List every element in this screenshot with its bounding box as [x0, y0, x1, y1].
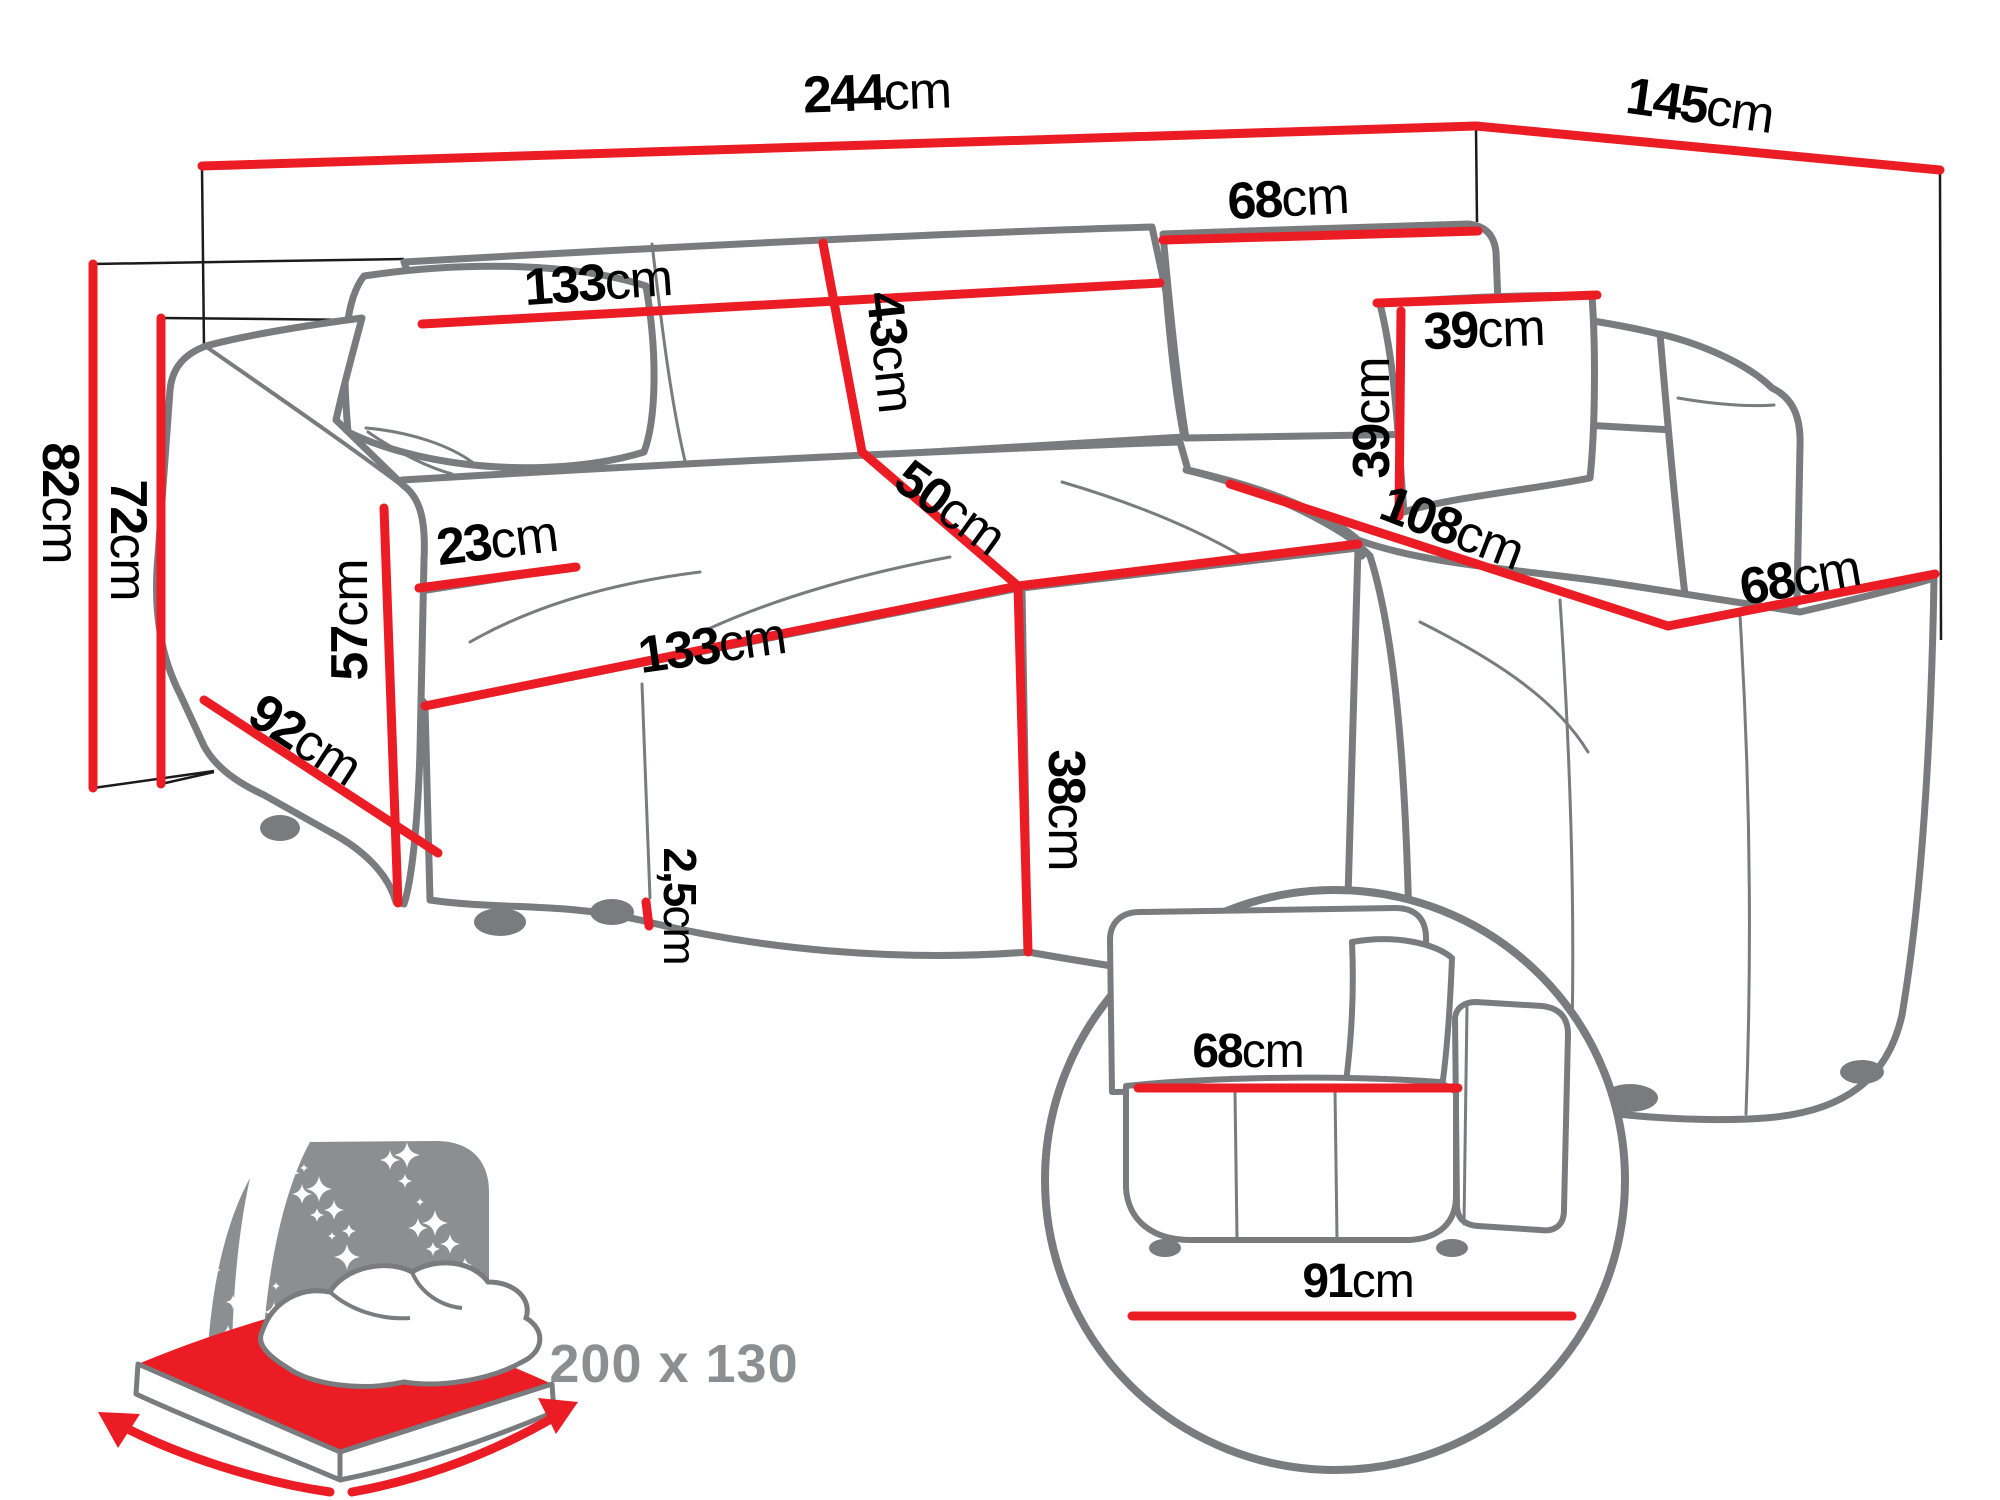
inset-foot [1149, 1239, 1181, 1257]
sleeping-size-badge: 200 x 130 [549, 1333, 798, 1395]
furniture-dimension-diagram: 244cm145cm68cm133cm43cm50cm133cm23cm57cm… [0, 0, 2000, 1500]
dim-line-total-depth [1476, 126, 1940, 170]
star-icon [268, 1148, 276, 1156]
inset-armrest [1455, 1002, 1568, 1230]
foot [590, 899, 634, 925]
dim-line-leg-height [646, 902, 649, 926]
bed-icon [98, 1141, 578, 1492]
extension-corner [1476, 128, 1477, 222]
extension-floor-left [93, 771, 214, 788]
dim-line-total-width [202, 126, 1476, 166]
detail-inset [1045, 890, 1625, 1470]
sofa-diagram-canvas [0, 0, 2000, 1500]
sofa-line-art [156, 224, 1934, 1120]
foot [260, 815, 300, 841]
inset-seat [1126, 1078, 1456, 1240]
inset-foot [1436, 1239, 1468, 1257]
dim-line-pillow-height [1399, 311, 1401, 516]
pillow-right [1380, 295, 1594, 512]
extension-right [1940, 172, 1941, 640]
foot [1840, 1060, 1884, 1084]
pillow-left [345, 266, 654, 467]
foot [474, 908, 526, 936]
extension-backrest-top [93, 259, 404, 264]
